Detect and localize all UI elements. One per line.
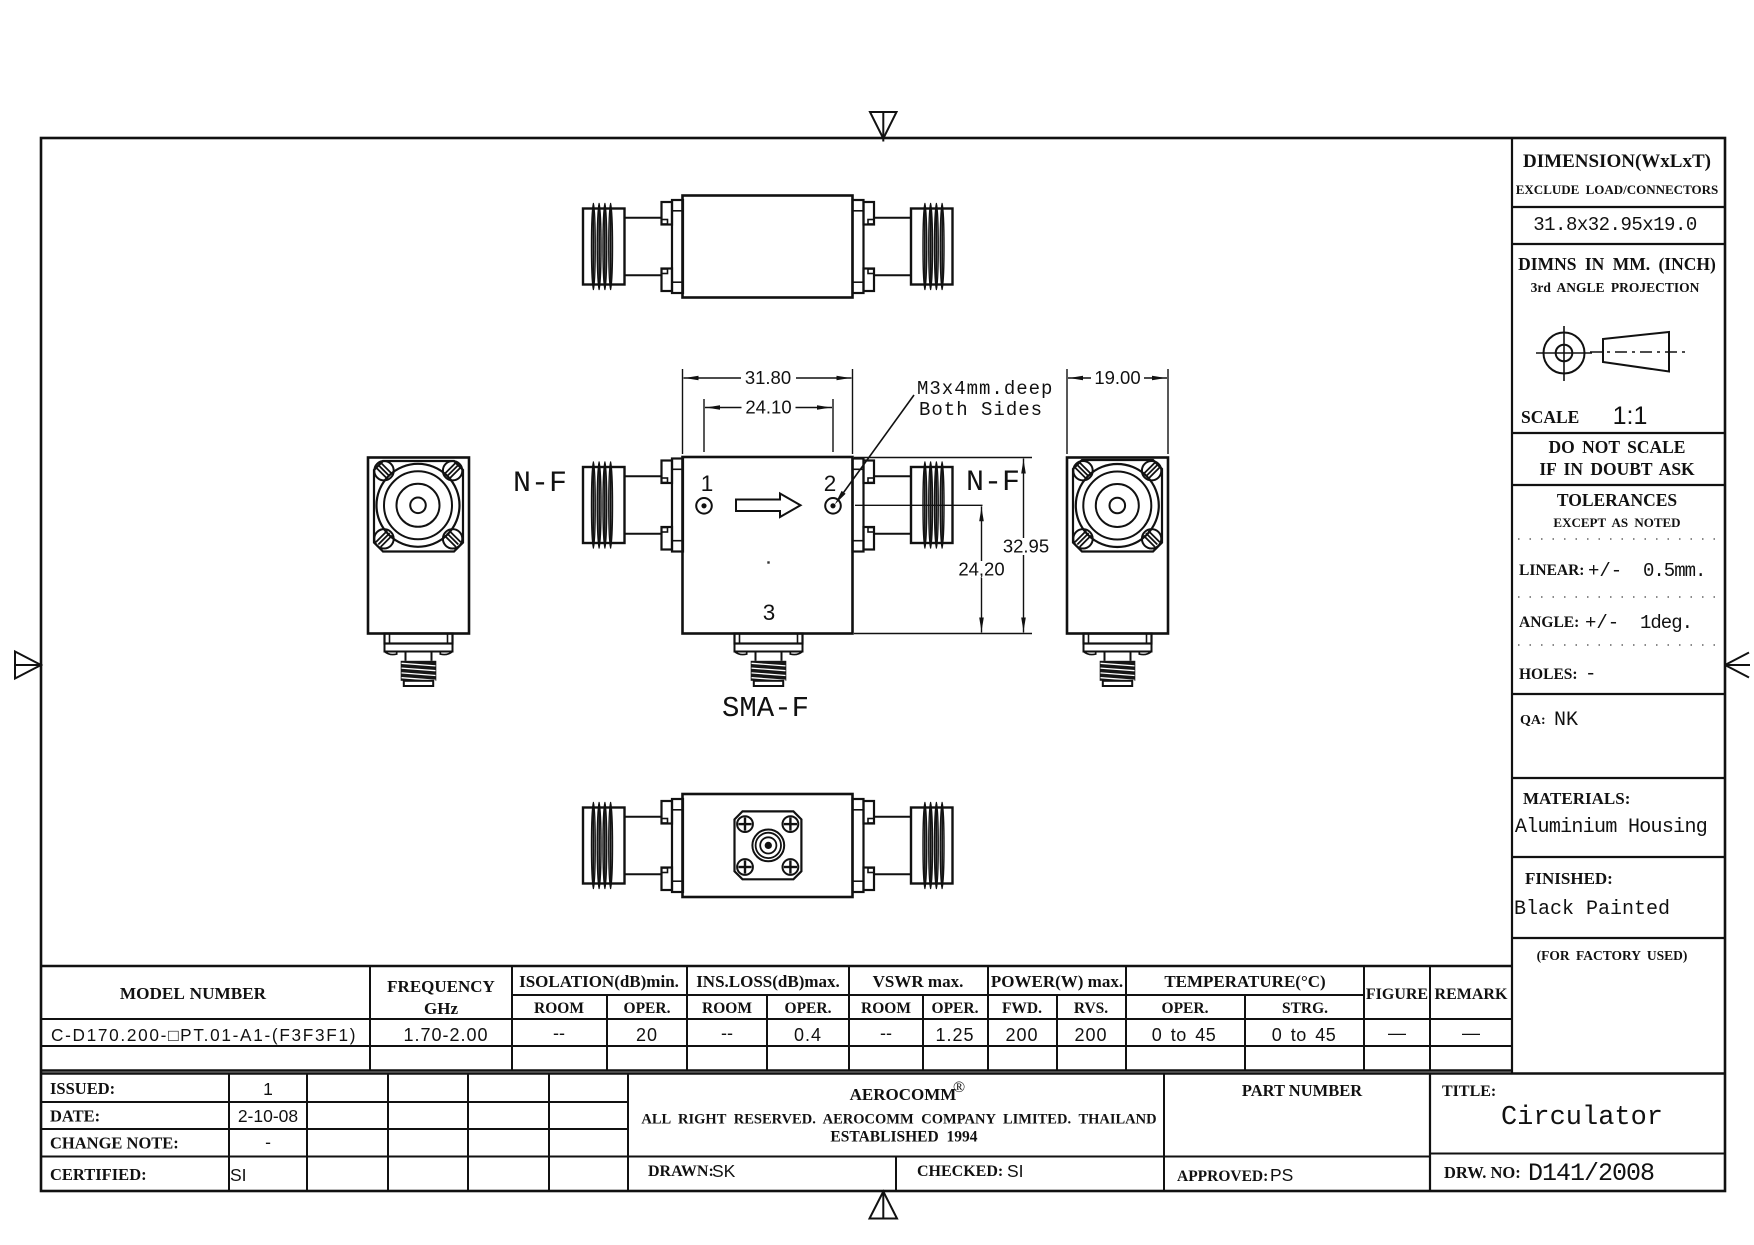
- svg-text:FWD.: FWD.: [1002, 1000, 1042, 1017]
- svg-text:CERTIFIED:: CERTIFIED:: [50, 1165, 147, 1184]
- svg-text:MATERIALS:: MATERIALS:: [1523, 789, 1630, 808]
- svg-text:TEMPERATURE(°C): TEMPERATURE(°C): [1164, 972, 1325, 991]
- svg-text:PART NUMBER: PART NUMBER: [1242, 1081, 1363, 1100]
- svg-text:MODEL NUMBER: MODEL NUMBER: [120, 984, 267, 1003]
- svg-text:QA:: QA:: [1520, 713, 1546, 728]
- svg-text:SI: SI: [230, 1165, 247, 1185]
- svg-text:Black Painted: Black Painted: [1514, 898, 1670, 921]
- svg-text:0 to 45: 0 to 45: [1152, 1025, 1217, 1045]
- svg-text:DRW. NO:: DRW. NO:: [1444, 1163, 1521, 1182]
- svg-text:INS.LOSS(dB)max.: INS.LOSS(dB)max.: [696, 972, 840, 991]
- svg-text:TITLE:: TITLE:: [1442, 1083, 1496, 1100]
- svg-text:N-F: N-F: [513, 467, 567, 501]
- svg-text:CHANGE NOTE:: CHANGE NOTE:: [50, 1134, 179, 1153]
- svg-text:C-D170.200-□PT.01-A1-(F3F3F1): C-D170.200-□PT.01-A1-(F3F3F1): [51, 1025, 357, 1045]
- svg-text:M3x4mm.deep: M3x4mm.deep: [917, 378, 1053, 400]
- svg-text:OPER.: OPER.: [932, 1000, 979, 1017]
- svg-text:GHz: GHz: [424, 999, 458, 1018]
- svg-text:OPER.: OPER.: [1162, 1000, 1209, 1017]
- svg-text:FREQUENCY: FREQUENCY: [387, 977, 495, 996]
- svg-text:NK: NK: [1554, 709, 1578, 732]
- svg-text:D141/2008: D141/2008: [1528, 1159, 1654, 1188]
- svg-text:ROOM: ROOM: [534, 1000, 584, 1017]
- svg-text:ROOM: ROOM: [861, 1000, 911, 1017]
- svg-text:3rd ANGLE PROJECTION: 3rd ANGLE PROJECTION: [1531, 280, 1700, 295]
- svg-text:LINEAR:: LINEAR:: [1519, 562, 1584, 579]
- svg-text:ESTABLISHED 1994: ESTABLISHED 1994: [830, 1129, 977, 1146]
- svg-text:Circulator: Circulator: [1501, 1103, 1663, 1133]
- svg-text:1:1: 1:1: [1613, 402, 1648, 430]
- svg-text:200: 200: [1005, 1025, 1038, 1045]
- svg-text:-: -: [265, 1132, 271, 1152]
- svg-text:(FOR FACTORY USED): (FOR FACTORY USED): [1537, 948, 1688, 963]
- svg-text:0.5mm.: 0.5mm.: [1643, 560, 1705, 582]
- svg-text:RVS.: RVS.: [1074, 1000, 1108, 1017]
- svg-text:SMA-F: SMA-F: [722, 692, 809, 725]
- svg-text:31.80: 31.80: [745, 367, 791, 388]
- svg-text:DO NOT SCALE: DO NOT SCALE: [1549, 437, 1686, 457]
- svg-text:24,20: 24,20: [958, 559, 1004, 580]
- svg-text:Both Sides: Both Sides: [919, 399, 1043, 421]
- svg-text:ALL RIGHT RESERVED. AEROCOMM C: ALL RIGHT RESERVED. AEROCOMM COMPANY LIM…: [641, 1112, 1156, 1128]
- svg-text:ROOM: ROOM: [702, 1000, 752, 1017]
- svg-text:2-10-08: 2-10-08: [238, 1106, 298, 1126]
- svg-text:DIMENSION(WxLxT): DIMENSION(WxLxT): [1523, 151, 1711, 172]
- svg-text:—: —: [1388, 1023, 1406, 1043]
- svg-text:STRG.: STRG.: [1282, 1000, 1328, 1017]
- svg-text:OPER.: OPER.: [624, 1000, 671, 1017]
- svg-text:FINISHED:: FINISHED:: [1525, 869, 1613, 888]
- svg-text:19.00: 19.00: [1094, 367, 1140, 388]
- svg-text:0.4: 0.4: [794, 1025, 822, 1045]
- svg-text:-: -: [1585, 663, 1596, 685]
- svg-text:®: ®: [953, 1079, 965, 1096]
- svg-text:POWER(W) max.: POWER(W) max.: [991, 972, 1123, 991]
- svg-text:PS: PS: [1270, 1165, 1293, 1185]
- svg-text:--: --: [880, 1023, 892, 1043]
- svg-text:SCALE: SCALE: [1521, 407, 1579, 427]
- svg-text:3: 3: [763, 600, 776, 625]
- svg-text:31.8x32.95x19.0: 31.8x32.95x19.0: [1533, 214, 1697, 236]
- svg-text:FIGURE: FIGURE: [1366, 986, 1428, 1003]
- svg-text:REMARK: REMARK: [1435, 986, 1508, 1003]
- svg-text:ISSUED:: ISSUED:: [50, 1079, 115, 1098]
- svg-text:SK: SK: [712, 1161, 736, 1181]
- svg-text:CHECKED:: CHECKED:: [917, 1163, 1003, 1180]
- svg-text:APPROVED:: APPROVED:: [1177, 1168, 1268, 1185]
- svg-text:32.95: 32.95: [1003, 536, 1049, 557]
- svg-text:1: 1: [263, 1079, 273, 1099]
- svg-text:+/-: +/-: [1588, 560, 1622, 582]
- svg-text:ANGLE:: ANGLE:: [1519, 614, 1579, 631]
- svg-text:+/-: +/-: [1585, 612, 1619, 634]
- svg-text:24.10: 24.10: [745, 397, 791, 418]
- svg-text:TOLERANCES: TOLERANCES: [1557, 490, 1677, 510]
- svg-text:1: 1: [701, 471, 714, 496]
- svg-text:20: 20: [636, 1025, 658, 1045]
- svg-text:1deg.: 1deg.: [1640, 612, 1692, 634]
- svg-text:EXCEPT AS NOTED: EXCEPT AS NOTED: [1553, 515, 1680, 530]
- svg-text:N-F: N-F: [966, 466, 1020, 500]
- svg-text:200: 200: [1074, 1025, 1107, 1045]
- svg-text:--: --: [553, 1023, 565, 1043]
- svg-text:EXCLUDE LOAD/CONNECTORS: EXCLUDE LOAD/CONNECTORS: [1516, 182, 1719, 197]
- svg-text:IF IN DOUBT ASK: IF IN DOUBT ASK: [1539, 459, 1695, 479]
- svg-text:Aluminium Housing: Aluminium Housing: [1515, 816, 1707, 839]
- svg-text:0 to 45: 0 to 45: [1272, 1025, 1337, 1045]
- svg-text:2: 2: [824, 471, 837, 496]
- svg-text:1.70-2.00: 1.70-2.00: [403, 1025, 488, 1045]
- svg-text:1.25: 1.25: [935, 1025, 974, 1045]
- svg-text:DRAWN:: DRAWN:: [648, 1163, 714, 1180]
- svg-text:—: —: [1462, 1023, 1480, 1043]
- svg-text:AEROCOMM: AEROCOMM: [850, 1085, 957, 1104]
- svg-text:--: --: [721, 1023, 733, 1043]
- svg-text:DATE:: DATE:: [50, 1107, 100, 1126]
- svg-text:HOLES:: HOLES:: [1519, 666, 1578, 683]
- svg-text:VSWR max.: VSWR max.: [873, 972, 964, 991]
- svg-text:SI: SI: [1007, 1161, 1024, 1181]
- svg-text:OPER.: OPER.: [785, 1000, 832, 1017]
- svg-text:DIMNS IN MM. (INCH): DIMNS IN MM. (INCH): [1518, 254, 1716, 274]
- svg-text:ISOLATION(dB)min.: ISOLATION(dB)min.: [519, 972, 679, 991]
